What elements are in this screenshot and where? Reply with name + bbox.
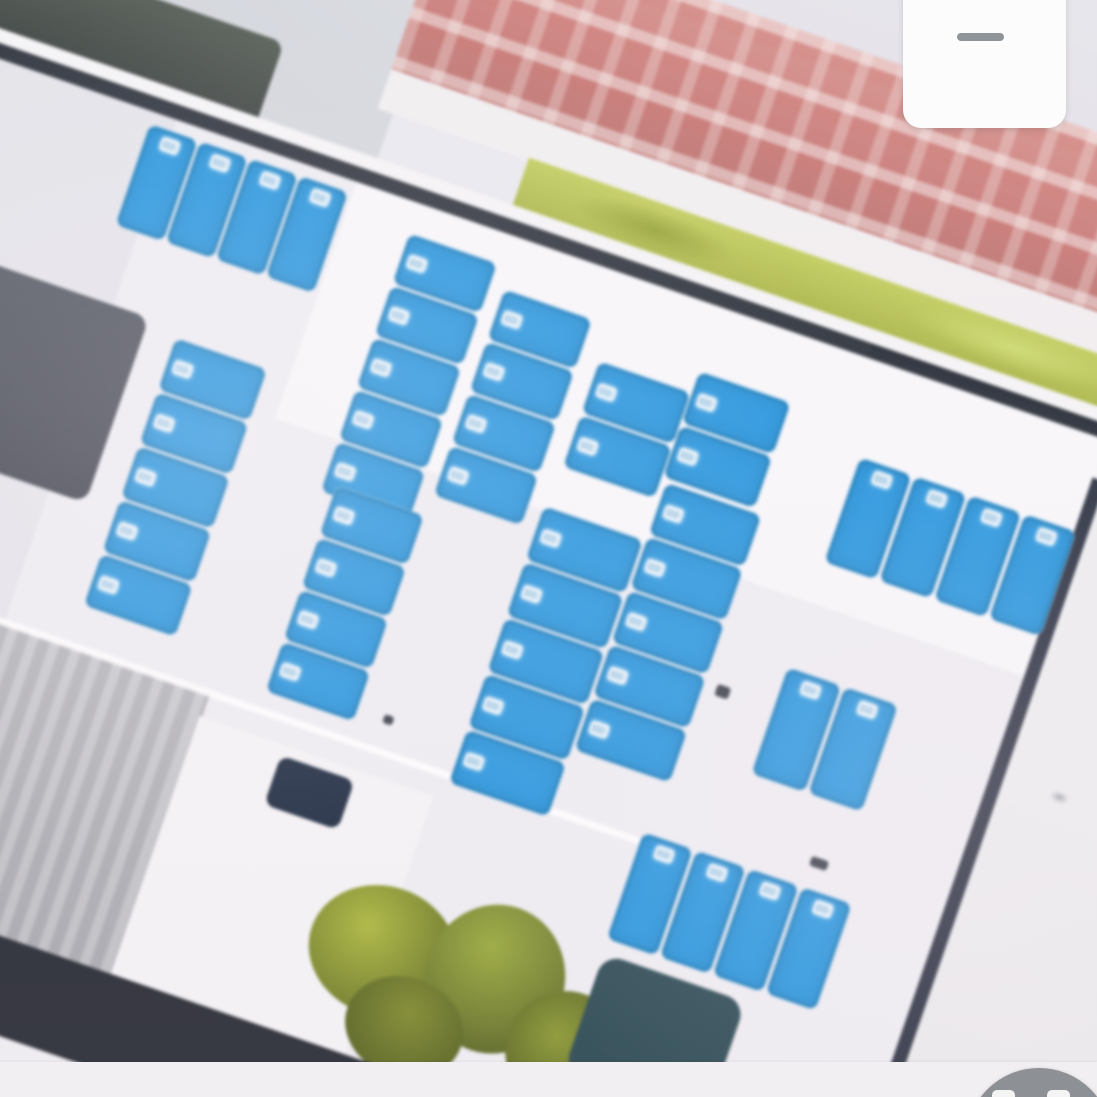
unit-label: [463, 752, 486, 771]
map-world: [0, 0, 1097, 1097]
unit-label: [595, 383, 618, 402]
unit-label: [447, 466, 470, 485]
unit-label: [855, 700, 878, 719]
unit-label: [705, 863, 728, 882]
unit-label: [501, 640, 524, 659]
map-screen: [0, 0, 1097, 1097]
unit-label: [576, 437, 599, 456]
unit-label: [1035, 527, 1058, 546]
unit-label: [644, 558, 667, 577]
unit-label: [652, 845, 675, 864]
unit-label: [799, 680, 822, 699]
unit-label: [758, 881, 781, 900]
unit-label: [352, 410, 375, 429]
unit-label: [406, 254, 429, 273]
unit-label: [980, 508, 1003, 527]
unit-label: [388, 306, 411, 325]
unit-label: [153, 414, 176, 433]
unit-label: [925, 489, 948, 508]
fab-glyph-left: [992, 1090, 1015, 1097]
unit-label: [695, 393, 718, 412]
unit-label: [158, 136, 181, 155]
unit-label: [625, 612, 648, 631]
unit-label: [520, 584, 543, 603]
unit-label: [297, 610, 320, 629]
unit-label: [258, 171, 281, 190]
map-viewport[interactable]: [0, 0, 1097, 1097]
unit-label: [870, 470, 893, 489]
bottom-bar: [0, 1062, 1097, 1097]
unit-label: [208, 153, 231, 172]
fab-glyph-right: [1047, 1090, 1070, 1097]
unit-label: [662, 504, 685, 523]
unit-label: [501, 310, 524, 329]
unit-label: [588, 720, 611, 739]
unit-label: [482, 696, 505, 715]
unit-label: [308, 188, 331, 207]
unit-label: [540, 529, 563, 548]
zoom-out-button[interactable]: [903, 0, 1066, 128]
minus-icon: [957, 33, 1004, 41]
unit-label: [116, 521, 139, 540]
unit-label: [334, 462, 357, 481]
unit-label: [677, 447, 700, 466]
unit-label: [483, 362, 506, 381]
unit-label: [279, 662, 302, 681]
unit-label: [134, 467, 157, 486]
unit-label: [465, 414, 488, 433]
unit-label: [315, 558, 338, 577]
unit-label: [606, 666, 629, 685]
unit-label: [97, 575, 120, 594]
unit-label: [333, 506, 356, 525]
unit-label: [811, 899, 834, 918]
unit-label: [370, 358, 393, 377]
unit-label: [172, 360, 195, 379]
